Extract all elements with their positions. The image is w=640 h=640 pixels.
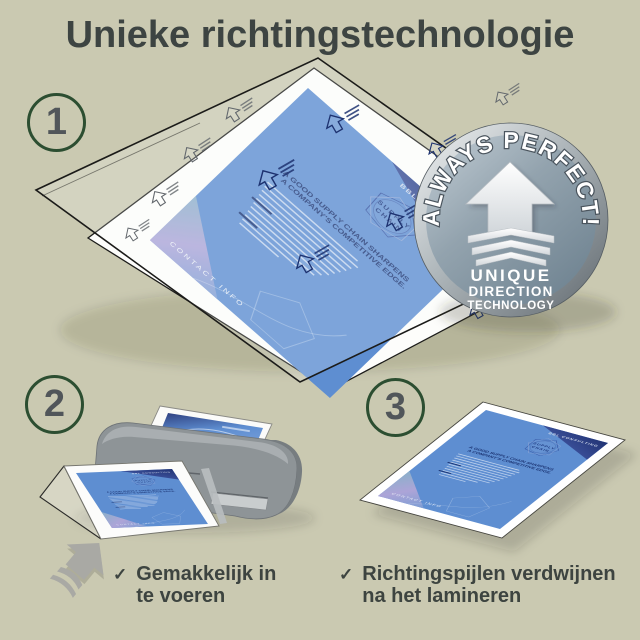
check-icon: ✓	[339, 563, 353, 607]
check-icon: ✓	[113, 563, 127, 607]
badge-line2: DIRECTION	[468, 284, 553, 299]
benefit-arrows-disappear: ✓ Richtingspijlen verdwijnen na het lami…	[339, 563, 616, 607]
insert-direction-arrow-icon	[43, 528, 120, 606]
step-3-number: 3	[385, 386, 406, 429]
step-2-marker: 2	[25, 375, 84, 434]
badge-line3: TECHNOLOGY	[467, 300, 554, 312]
page-title: Unieke richtingstechnologie	[0, 14, 640, 57]
benefit-line: Gemakkelijk in	[136, 563, 276, 585]
illustration-canvas: BBL CONSULTING SUPPLY CHAIN A GOOD SUPPL…	[0, 0, 640, 640]
step-3-marker: 3	[366, 378, 425, 437]
benefit-text: Gemakkelijk in te voeren	[136, 563, 276, 607]
benefit-line: Richtingspijlen verdwijnen	[362, 563, 615, 585]
product-instruction-graphic: BBL CONSULTING SUPPLY CHAIN A GOOD SUPPL…	[0, 0, 640, 640]
benefit-easy-feed: ✓ Gemakkelijk in te voeren	[113, 563, 276, 607]
benefit-line: na het lamineren	[362, 585, 521, 607]
benefit-text: Richtingspijlen verdwijnen na het lamine…	[362, 563, 615, 607]
step-1-number: 1	[46, 101, 67, 144]
step-1-marker: 1	[27, 93, 86, 152]
benefit-line: te voeren	[136, 585, 225, 607]
badge-line1: UNIQUE	[470, 266, 551, 285]
step-2-number: 2	[44, 383, 65, 426]
